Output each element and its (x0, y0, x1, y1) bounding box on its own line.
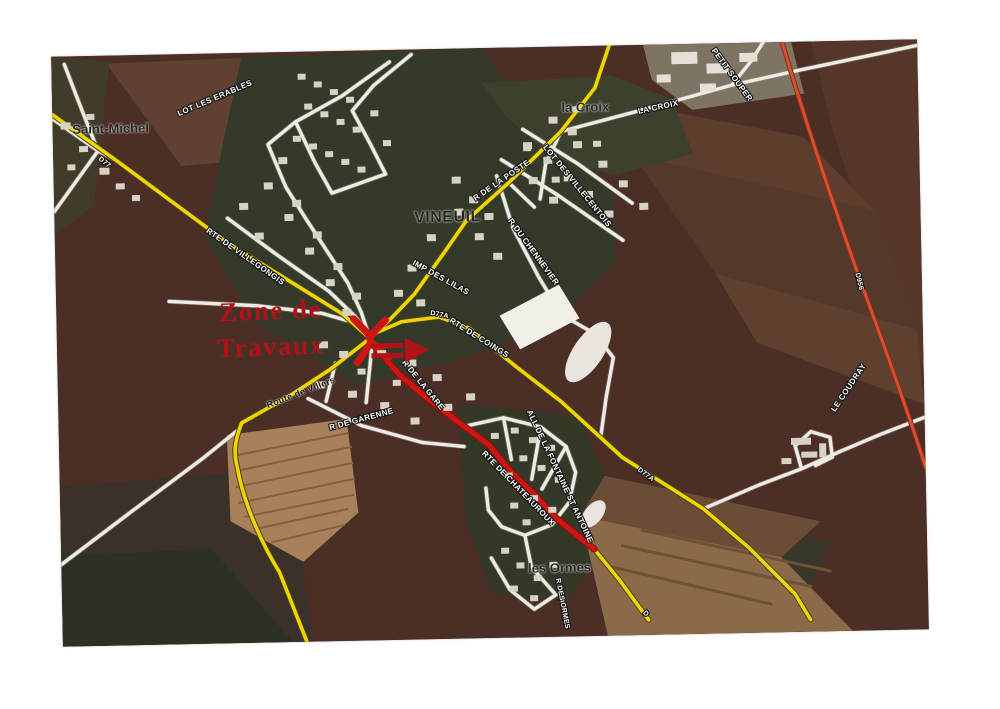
roadworks-annotation-line1: Zone de (219, 295, 323, 326)
place-label-les-ormes: les Ormes (528, 561, 591, 575)
roadworks-annotation-line2: Travaux (217, 331, 325, 362)
scanned-map-page: { "map": { "description": "Scanned aeria… (0, 0, 1000, 709)
place-label-la-croix: la Croix (561, 100, 609, 114)
place-label-vineuil: VINEUIL (414, 209, 481, 226)
place-label-saint-michel: Saint-Michel (72, 121, 149, 136)
aerial-map: Saint-Michel VINEUIL la Croix les Ormes … (51, 39, 929, 646)
double-arrow-right-icon (371, 337, 430, 364)
